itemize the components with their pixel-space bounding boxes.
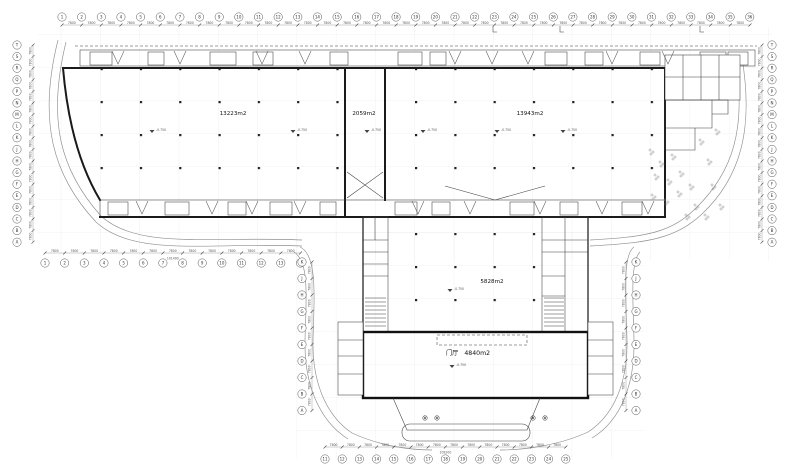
dimension-text: 7800 [622,299,626,307]
grid-bubble-label: N [16,100,19,105]
grid-bubble-label: 23 [492,14,498,19]
dimension-text: 7800 [29,198,33,206]
grid-bubble-label: 1 [61,14,64,19]
grid-bubble-label: S [16,54,19,59]
lobby-label: 门厅4840m2 [446,349,490,357]
dimension-text: 7800 [149,249,157,253]
grid-bubble-label: 13 [357,456,363,461]
dimension-text: 7800 [186,21,194,25]
grid-bubble-label: B [771,228,774,233]
dimension-text: 7800 [29,105,33,113]
dimension-text: 7800 [450,443,458,447]
grid-bubble-label: 8 [198,14,201,19]
grid-bubble-label: D [300,358,303,363]
elevation-value: -0.750 [371,128,381,132]
dimension-text: 7800 [208,249,216,253]
grid-bubble-label: 22 [472,14,478,19]
dimension-text: 7800 [308,349,312,357]
hall-left-floor [63,68,345,200]
dimension-text: 7800 [758,221,762,229]
grid-bubble-label: T [15,42,19,47]
dimension-text: 7800 [169,249,177,253]
dimension-text: 7800 [29,58,33,66]
grid-bubble-label: 7 [179,14,182,19]
dimension-text: 7800 [130,249,138,253]
dimension-text: 7800 [416,443,424,447]
grid-bubble-label: 17 [426,456,432,461]
dimension-text: 7800 [622,332,626,340]
elevation-value: -0.750 [501,128,511,132]
dimension-text: 7800 [758,174,762,182]
dimension-text: 7800 [88,21,96,25]
elevation-value: -0.750 [567,128,577,132]
dimension-text: 7800 [382,21,390,25]
dimension-text: 7800 [717,21,725,25]
dimension-text: 7800 [127,21,135,25]
dimension-text: 7800 [29,186,33,194]
dimension-text: 7800 [90,249,98,253]
dimension-text: 7800 [520,21,528,25]
grid-bubble-label: 28 [590,14,596,19]
grid-bubble-label: C [771,216,774,221]
grid-bubble-label: 10 [236,14,242,19]
dimension-text: 7800 [622,365,626,373]
grid-bubble-label: 36 [747,14,753,19]
dimension-text: 7800 [638,21,646,25]
dimension-text: 7800 [579,21,587,25]
grid-bubble-label: 2 [80,14,83,19]
grid-bubble-label: D [770,205,773,210]
dimension-text: 7800 [540,21,548,25]
grid-bubble-label: K [16,135,19,140]
grid-bubble-label: C [301,375,304,380]
dimension-text: 7800 [398,443,406,447]
dimension-text: 7800 [267,249,275,253]
grid-bubble-label: H [15,158,18,163]
grid-bubble-label: 32 [669,14,675,19]
grid-bubble-label: 14 [315,14,321,19]
floor-plan-page: 13223m2 2059m2 13943m2 5828m2 门厅4840m2 1… [0,0,800,470]
dimension-text: 7800 [308,283,312,291]
grid-bubble-label: M [15,112,19,117]
grid-bubble-label: 11 [322,456,328,461]
grid-bubble-label: H [634,292,637,297]
dimension-text: 7800 [758,47,762,55]
dimension-text: 7800 [363,21,371,25]
grid-bubble-label: 10 [219,260,225,265]
dimension-text: 7800 [381,443,389,447]
dimension-text: 7800 [618,21,626,25]
grid-bubble-label: S [771,54,774,59]
grid-bubble-label: J [634,276,636,281]
dimension-text: 7800 [467,443,475,447]
dimension-text: 7800 [622,283,626,291]
hall-right-floor [385,68,665,200]
grid-bubble-label: Q [770,77,773,82]
grid-bubble-label: 19 [460,456,466,461]
dimension-text: 7800 [677,21,685,25]
grid-bubble-label: G [770,170,773,175]
dimension-text: 7800 [758,116,762,124]
dimension-text: 7800 [29,82,33,90]
dimension-text: 7800 [304,21,312,25]
hall-middle-area-label: 2059m2 [352,111,375,117]
dimension-text: 7800 [622,266,626,274]
grid-bubble-label: 24 [511,14,517,19]
dimension-text: 7800 [308,365,312,373]
dimension-text: 7800 [758,105,762,113]
grid-bubble-label: A [16,240,19,245]
wing-hall-floor [388,217,542,332]
dimension-text: 7800 [287,249,295,253]
grid-bubble-label: 18 [443,456,449,461]
dimension-text: 7800 [308,266,312,274]
lobby-name: 门厅 [446,349,458,357]
grid-bubble-label: R [771,66,774,71]
dimension-text: 7800 [188,249,196,253]
grid-bubble-label: G [15,170,18,175]
hall-right-area-label: 13943m2 [517,111,544,117]
dimension-text: 7800 [553,443,561,447]
dimension-text: 7800 [758,82,762,90]
grid-bubble-label: 18 [394,14,400,19]
grid-bubble-label: 19 [413,14,419,19]
grid-bubble-label: 35 [728,14,734,19]
dimension-text: 7800 [284,21,292,25]
dimension-text: 7800 [308,332,312,340]
dimension-text: 7800 [622,349,626,357]
grid-bubble-label: 6 [159,14,162,19]
grid-bubble-label: 7 [162,260,165,265]
grid-bubble-label: J [15,147,17,152]
wing-hall-area-label: 5828m2 [480,279,503,285]
grid-bubble-label: 15 [335,14,341,19]
dimension-text: 7800 [308,299,312,307]
grid-bubble-label: 34 [708,14,714,19]
dimension-text: 7800 [433,443,441,447]
dimension-text: 7800 [622,398,626,406]
dimension-text: 7800 [502,443,510,447]
dimension-text: 7800 [758,232,762,240]
dimension-text: 7800 [758,209,762,217]
dimension-text: 7800 [402,21,410,25]
dimension-text: 7800 [758,93,762,101]
grid-bubble-label: T [770,42,774,47]
grid-bubble-label: B [635,391,638,396]
dimension-text: 7800 [29,140,33,148]
dimension-text: 7800 [147,21,155,25]
grid-bubble-label: A [635,408,638,413]
grid-bubble-label: G [634,309,637,314]
grid-bubble-label: D [15,205,18,210]
grid-bubble-label: N [771,100,774,105]
grid-bubble-label: 26 [551,14,557,19]
grid-bubble-label: 15 [391,456,397,461]
dimension-text: 7800 [330,443,338,447]
grid-bubble-label: H [300,292,303,297]
grid-bubble-label: C [16,216,19,221]
grid-bubble-label: 16 [354,14,360,19]
grid-bubble-label: 12 [259,260,265,265]
grid-bubble-label: J [300,276,302,281]
grid-bubble-label: C [635,375,638,380]
grid-bubble-label: H [770,158,773,163]
elevation-value: -0.750 [456,363,466,367]
dimension-text: 7800 [441,21,449,25]
dimension-text: 7800 [484,443,492,447]
grid-bubble-label: 12 [276,14,282,19]
dimension-text: 7800 [658,21,666,25]
dimension-text: 7800 [68,21,76,25]
grid-bubble-label: 21 [494,456,500,461]
grid-bubble-label: 30 [629,14,635,19]
dimension-text: 7800 [245,21,253,25]
dimension-text: 7800 [622,316,626,324]
dimension-text: 7800 [110,249,118,253]
grid-bubble-label: 6 [142,260,145,265]
elevation-value: -0.750 [427,128,437,132]
grid-bubble-label: R [16,66,19,71]
grid-bubble-label: A [771,240,774,245]
dimension-text: 7800 [225,21,233,25]
dimension-text: 7800 [758,163,762,171]
dimension-text: 7800 [559,21,567,25]
grid-bubble-label: 25 [531,14,537,19]
elevation-value: -0.750 [297,128,307,132]
grid-bubble-label: 24 [546,456,552,461]
dimension-text: 7800 [599,21,607,25]
dimension-text: 7800 [519,443,527,447]
dimension-text: 7800 [29,163,33,171]
grid-bubble-label: 21 [452,14,458,19]
grid-bubble-label: 31 [649,14,655,19]
dimension-text: 7800 [461,21,469,25]
grid-bubble-label: 13 [278,260,284,265]
grid-bubble-label: 17 [374,14,380,19]
dimension-text: 7800 [264,21,272,25]
dimension-text: 7800 [343,21,351,25]
grid-bubble-label: 13 [295,14,301,19]
dimension-text: 7800 [247,249,255,253]
grid-bubble-label: G [300,309,303,314]
dimension-text: 7800 [758,151,762,159]
dimension-text: 7800 [364,443,372,447]
dimension-text: 7800 [107,21,115,25]
dimension-text: 7800 [29,232,33,240]
dimension-text: 7800 [500,21,508,25]
grid-bubble-label: 2 [63,260,66,265]
grid-bubble-label: 11 [256,14,262,19]
dimension-text: 7800 [758,198,762,206]
dimension-text: 7800 [758,58,762,66]
grid-bubble-label: K [635,259,638,264]
floor-plan-drawing: 13223m2 2059m2 13943m2 5828m2 门厅4840m2 1… [0,0,800,470]
grid-bubble-label: 4 [103,260,106,265]
dimension-text: 7800 [758,128,762,136]
dimension-text: 7800 [323,21,331,25]
dimension-text: 7800 [29,70,33,78]
grid-bubble-label: 33 [688,14,694,19]
grid-bubble-label: 16 [408,456,414,461]
dimension-text: 7800 [228,249,236,253]
grid-bubble-label: 29 [610,14,616,19]
grid-bubble-label: 1 [44,260,47,265]
grid-bubble-label: 3 [83,260,86,265]
grid-bubble-label: 14 [374,456,380,461]
grid-bubble-label: 25 [563,456,569,461]
dimension-text: 7800 [71,249,79,253]
dimension-text: 7800 [29,221,33,229]
grid-bubble-label: K [301,259,304,264]
lobby-area: 4840m2 [464,350,490,357]
dimension-text: 7800 [29,93,33,101]
elevation-value: -0.750 [454,287,464,291]
dimension-text: 7800 [29,209,33,217]
dimension-text: 7800 [622,382,626,390]
dimension-text: 7800 [166,21,174,25]
dimension-text: 7800 [481,21,489,25]
dimension-text: 7800 [422,21,430,25]
dimension-total-text: 109200 [439,451,451,455]
dimension-text: 7800 [308,398,312,406]
grid-bubble-label: J [770,147,772,152]
grid-bubble-label: K [771,135,774,140]
dimension-text: 7800 [205,21,213,25]
dimension-text: 7800 [758,140,762,148]
grid-bubble-label: 4 [120,14,123,19]
grid-bubble-label: B [301,391,304,396]
dimension-text: 7800 [758,70,762,78]
grid-bubble-label: 8 [181,260,184,265]
dimension-text: 7800 [347,443,355,447]
dimension-text: 7800 [29,116,33,124]
dimension-text: 7800 [29,174,33,182]
dimension-text: 7800 [29,47,33,55]
grid-bubble-label: D [634,358,637,363]
grid-bubble-label: Q [15,77,18,82]
elevation-value: -0.750 [156,128,166,132]
dimension-text: 7800 [758,186,762,194]
grid-bubble-label: 20 [477,456,483,461]
hall-left-area-label: 13223m2 [220,111,247,117]
grid-bubble-label: 27 [570,14,576,19]
grid-bubble-label: 9 [218,14,221,19]
grid-bubble-label: 9 [201,260,204,265]
dimension-text: 7800 [29,151,33,159]
grid-bubble-label: B [16,228,19,233]
dimension-text: 7800 [697,21,705,25]
grid-bubble-label: 22 [512,456,518,461]
dimension-text: 7800 [29,128,33,136]
dimension-text: 7800 [51,249,59,253]
grid-bubble-label: 12 [340,456,346,461]
dimension-total-text: 101400 [167,257,179,261]
dimension-text: 7800 [736,21,744,25]
dimension-text: 7800 [308,316,312,324]
grid-bubble-label: 3 [100,14,103,19]
grid-bubble-label: 20 [433,14,439,19]
grid-bubble-label: 11 [239,260,245,265]
dimension-text: 7800 [536,443,544,447]
grid-bubble-label: A [301,408,304,413]
grid-bubble-label: 23 [529,456,535,461]
grid-bubble-label: M [770,112,774,117]
dimension-text: 7800 [308,382,312,390]
